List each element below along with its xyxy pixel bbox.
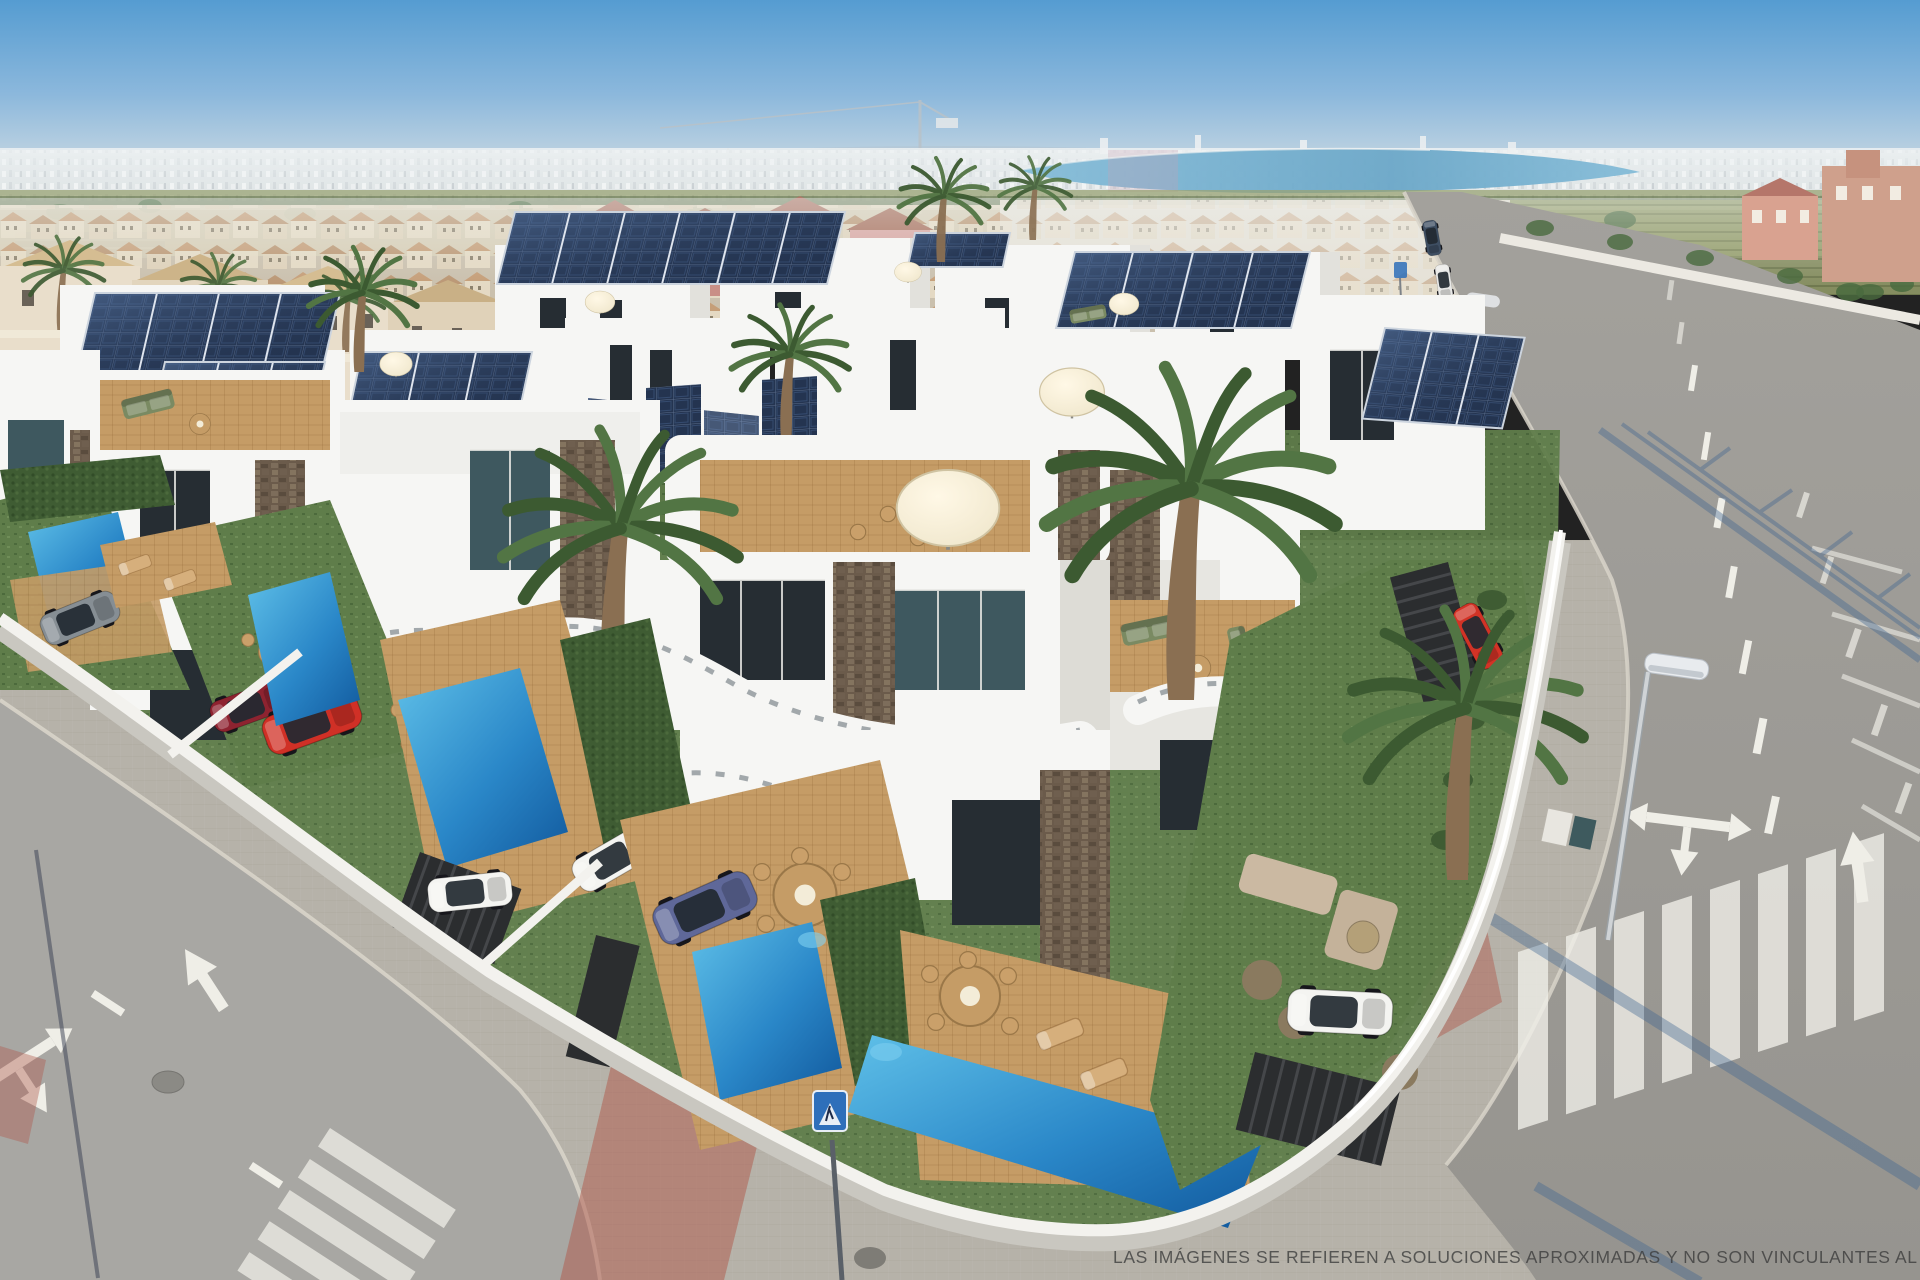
solar-array <box>1362 328 1524 428</box>
roof-table <box>190 414 211 435</box>
scene-svg: LAS IMÁGENES SE REFIEREN A SOLUCIONES AP… <box>0 0 1920 1280</box>
roof-chair <box>850 524 865 539</box>
wicker-chair <box>1242 960 1282 1000</box>
roof-chair <box>880 506 895 521</box>
white-suv <box>1286 984 1393 1039</box>
disclaimer-text: LAS IMÁGENES SE REFIEREN A SOLUCIONES AP… <box>1113 1247 1920 1267</box>
aerial-development-render: LAS IMÁGENES SE REFIEREN A SOLUCIONES AP… <box>0 0 1920 1280</box>
manhole <box>152 1071 184 1093</box>
dining-table <box>940 966 1000 1026</box>
solar-array <box>497 212 845 284</box>
wicker-table <box>1347 921 1379 953</box>
solar-array <box>908 233 1010 267</box>
manhole-2 <box>854 1247 886 1269</box>
